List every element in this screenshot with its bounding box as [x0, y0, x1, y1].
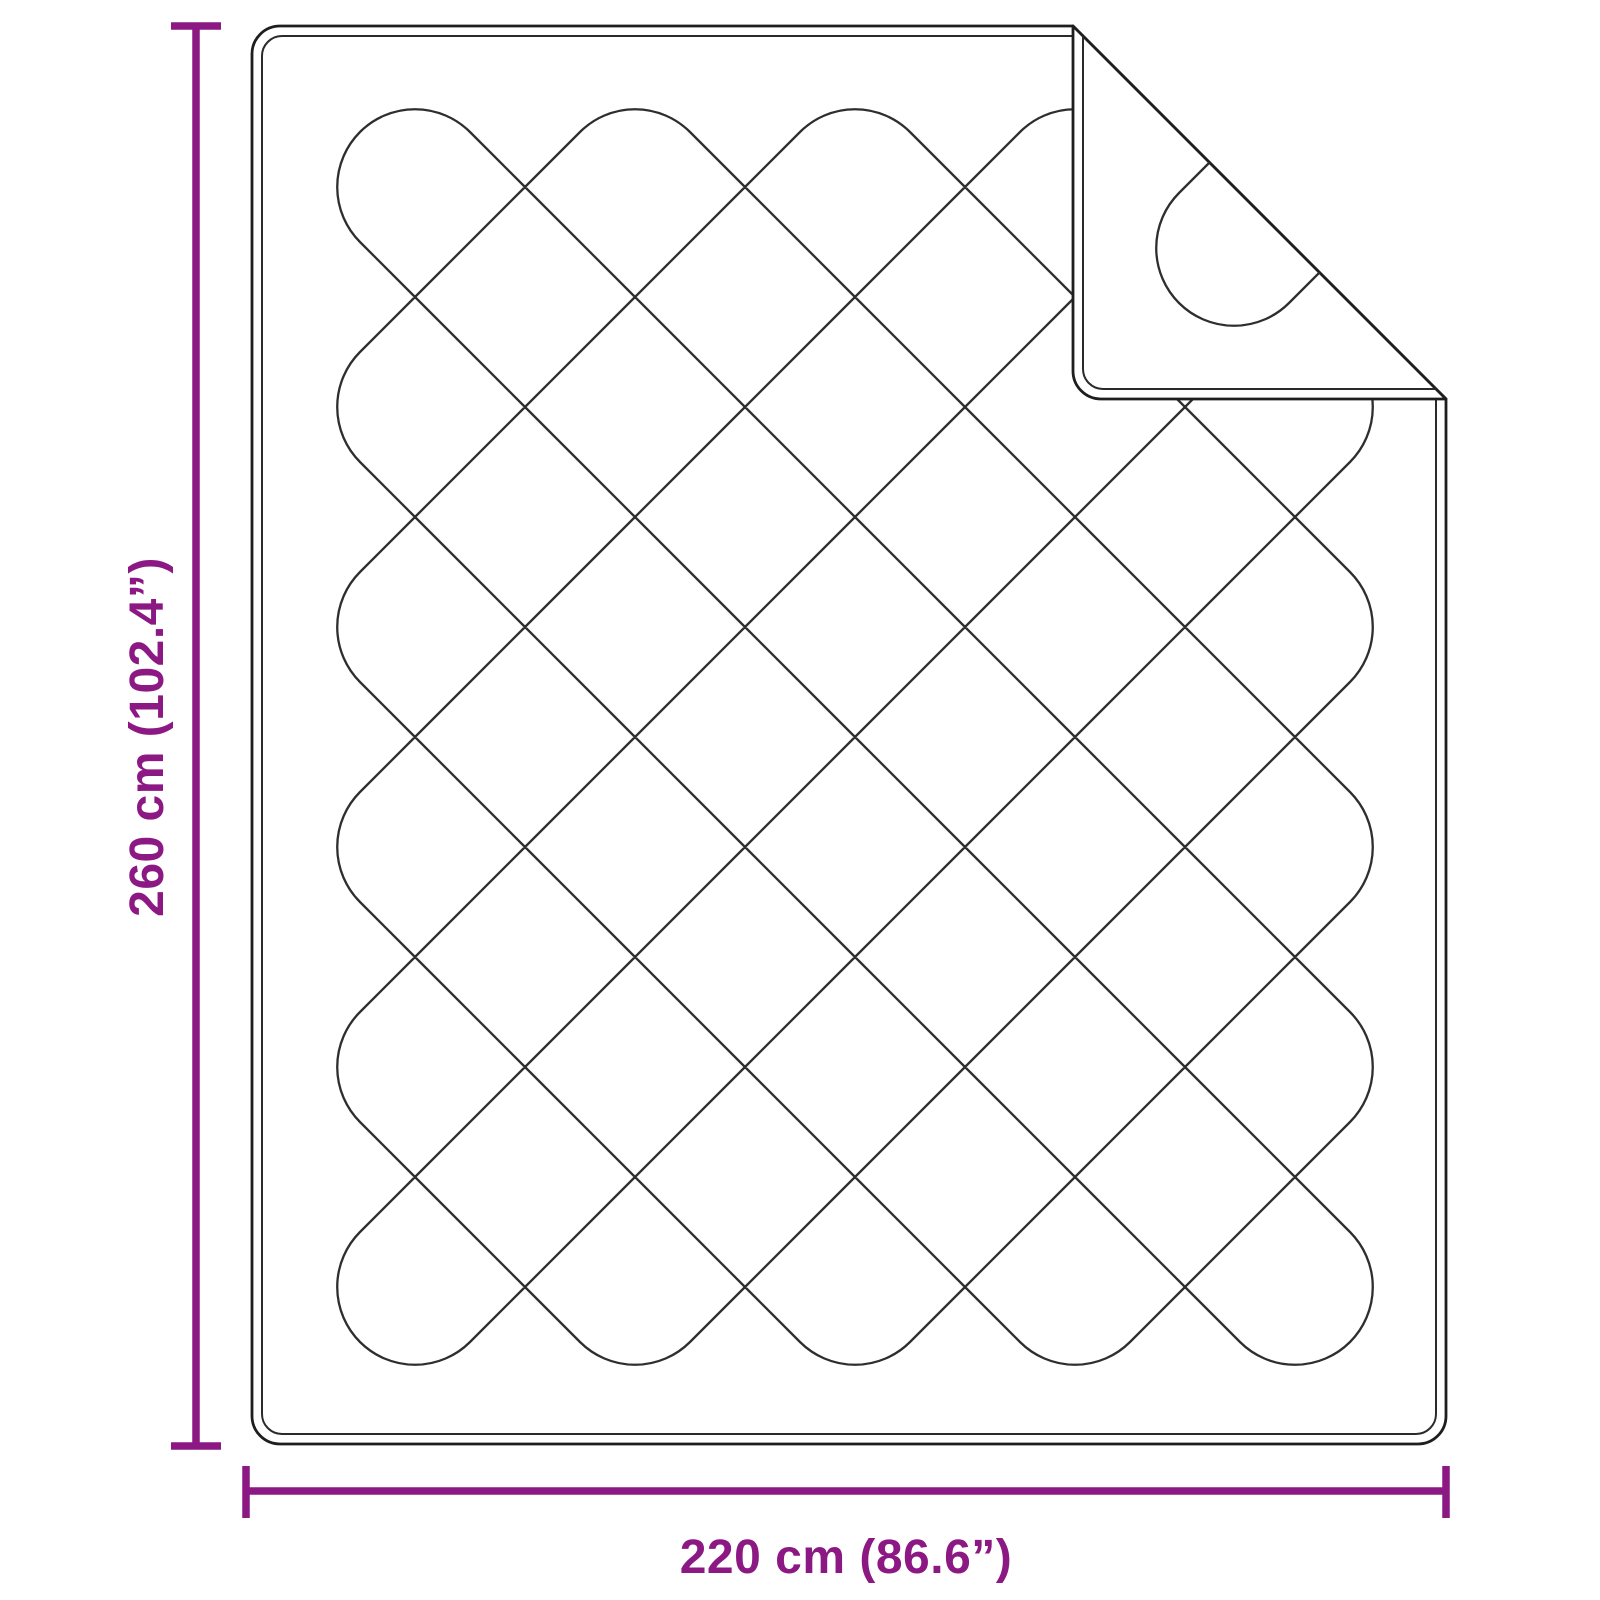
width-dimension-right-cap: [1442, 1466, 1450, 1518]
width-dimension-left-cap: [242, 1466, 250, 1518]
width-dimension-label: 220 cm (86.6”): [680, 1531, 1013, 1584]
diagram-canvas: 260 cm (102.4”) 220 cm (86.6”): [0, 0, 1600, 1600]
width-dimension-line: [246, 1487, 1446, 1495]
height-dimension-line: [192, 26, 200, 1446]
height-dimension-bottom-cap: [171, 1442, 221, 1450]
height-dimension-top-cap: [171, 22, 221, 30]
product-dimension-diagram: 260 cm (102.4”) 220 cm (86.6”): [0, 0, 1600, 1600]
height-dimension-label: 260 cm (102.4”): [121, 557, 174, 917]
